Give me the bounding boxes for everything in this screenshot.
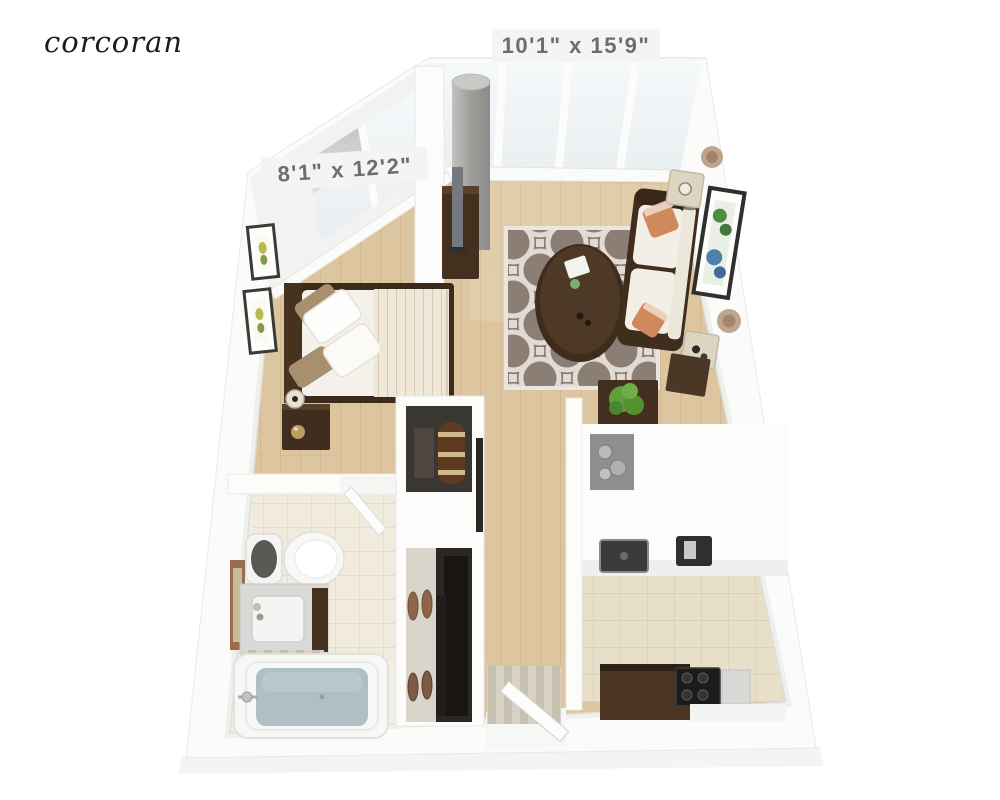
bed	[284, 282, 454, 403]
living-room-dimension-label: 10'1" x 15'9"	[492, 29, 660, 62]
faucet	[257, 614, 264, 621]
bathtub	[234, 654, 388, 738]
hall-kitchen-wall	[566, 398, 582, 710]
tv-screen	[452, 167, 463, 249]
refrigerator	[722, 670, 750, 704]
gold-vase	[291, 425, 305, 439]
side-table-top	[666, 170, 704, 208]
wall-medallion	[717, 309, 741, 333]
entry	[486, 666, 569, 750]
counter-return	[690, 704, 786, 722]
table-greenery	[570, 279, 580, 289]
table-lamp	[678, 182, 692, 196]
stove	[676, 668, 720, 706]
peninsula-counter	[582, 424, 788, 576]
toilet	[246, 532, 344, 586]
sliding-door-track	[476, 438, 483, 532]
corcoran-logo: corcoran	[44, 25, 183, 59]
plant-table	[598, 380, 658, 426]
hanging-clothes	[444, 556, 468, 716]
floor-plan-canvas: corcoran 10'1" x 15'9" 8'1" x 12'2"	[0, 0, 1000, 800]
lower-closet	[406, 548, 472, 722]
vanity-sink	[240, 584, 328, 654]
toilet-tank-lid	[251, 540, 277, 578]
living-room-dimension-text: 10'1" x 15'9"	[502, 33, 651, 58]
coffee-table	[535, 244, 625, 362]
wall-medallion	[701, 146, 723, 168]
floor-plan-page: corcoran 10'1" x 15'9" 8'1" x 12'2"	[0, 0, 1000, 800]
shoe	[408, 673, 418, 701]
left-wall-art	[244, 289, 276, 353]
shoe	[422, 671, 432, 699]
closets	[396, 396, 484, 726]
shoe	[422, 590, 432, 618]
left-wall-art	[247, 225, 278, 279]
shoe	[408, 592, 418, 620]
upper-closet	[406, 406, 472, 492]
end-table	[665, 353, 710, 397]
